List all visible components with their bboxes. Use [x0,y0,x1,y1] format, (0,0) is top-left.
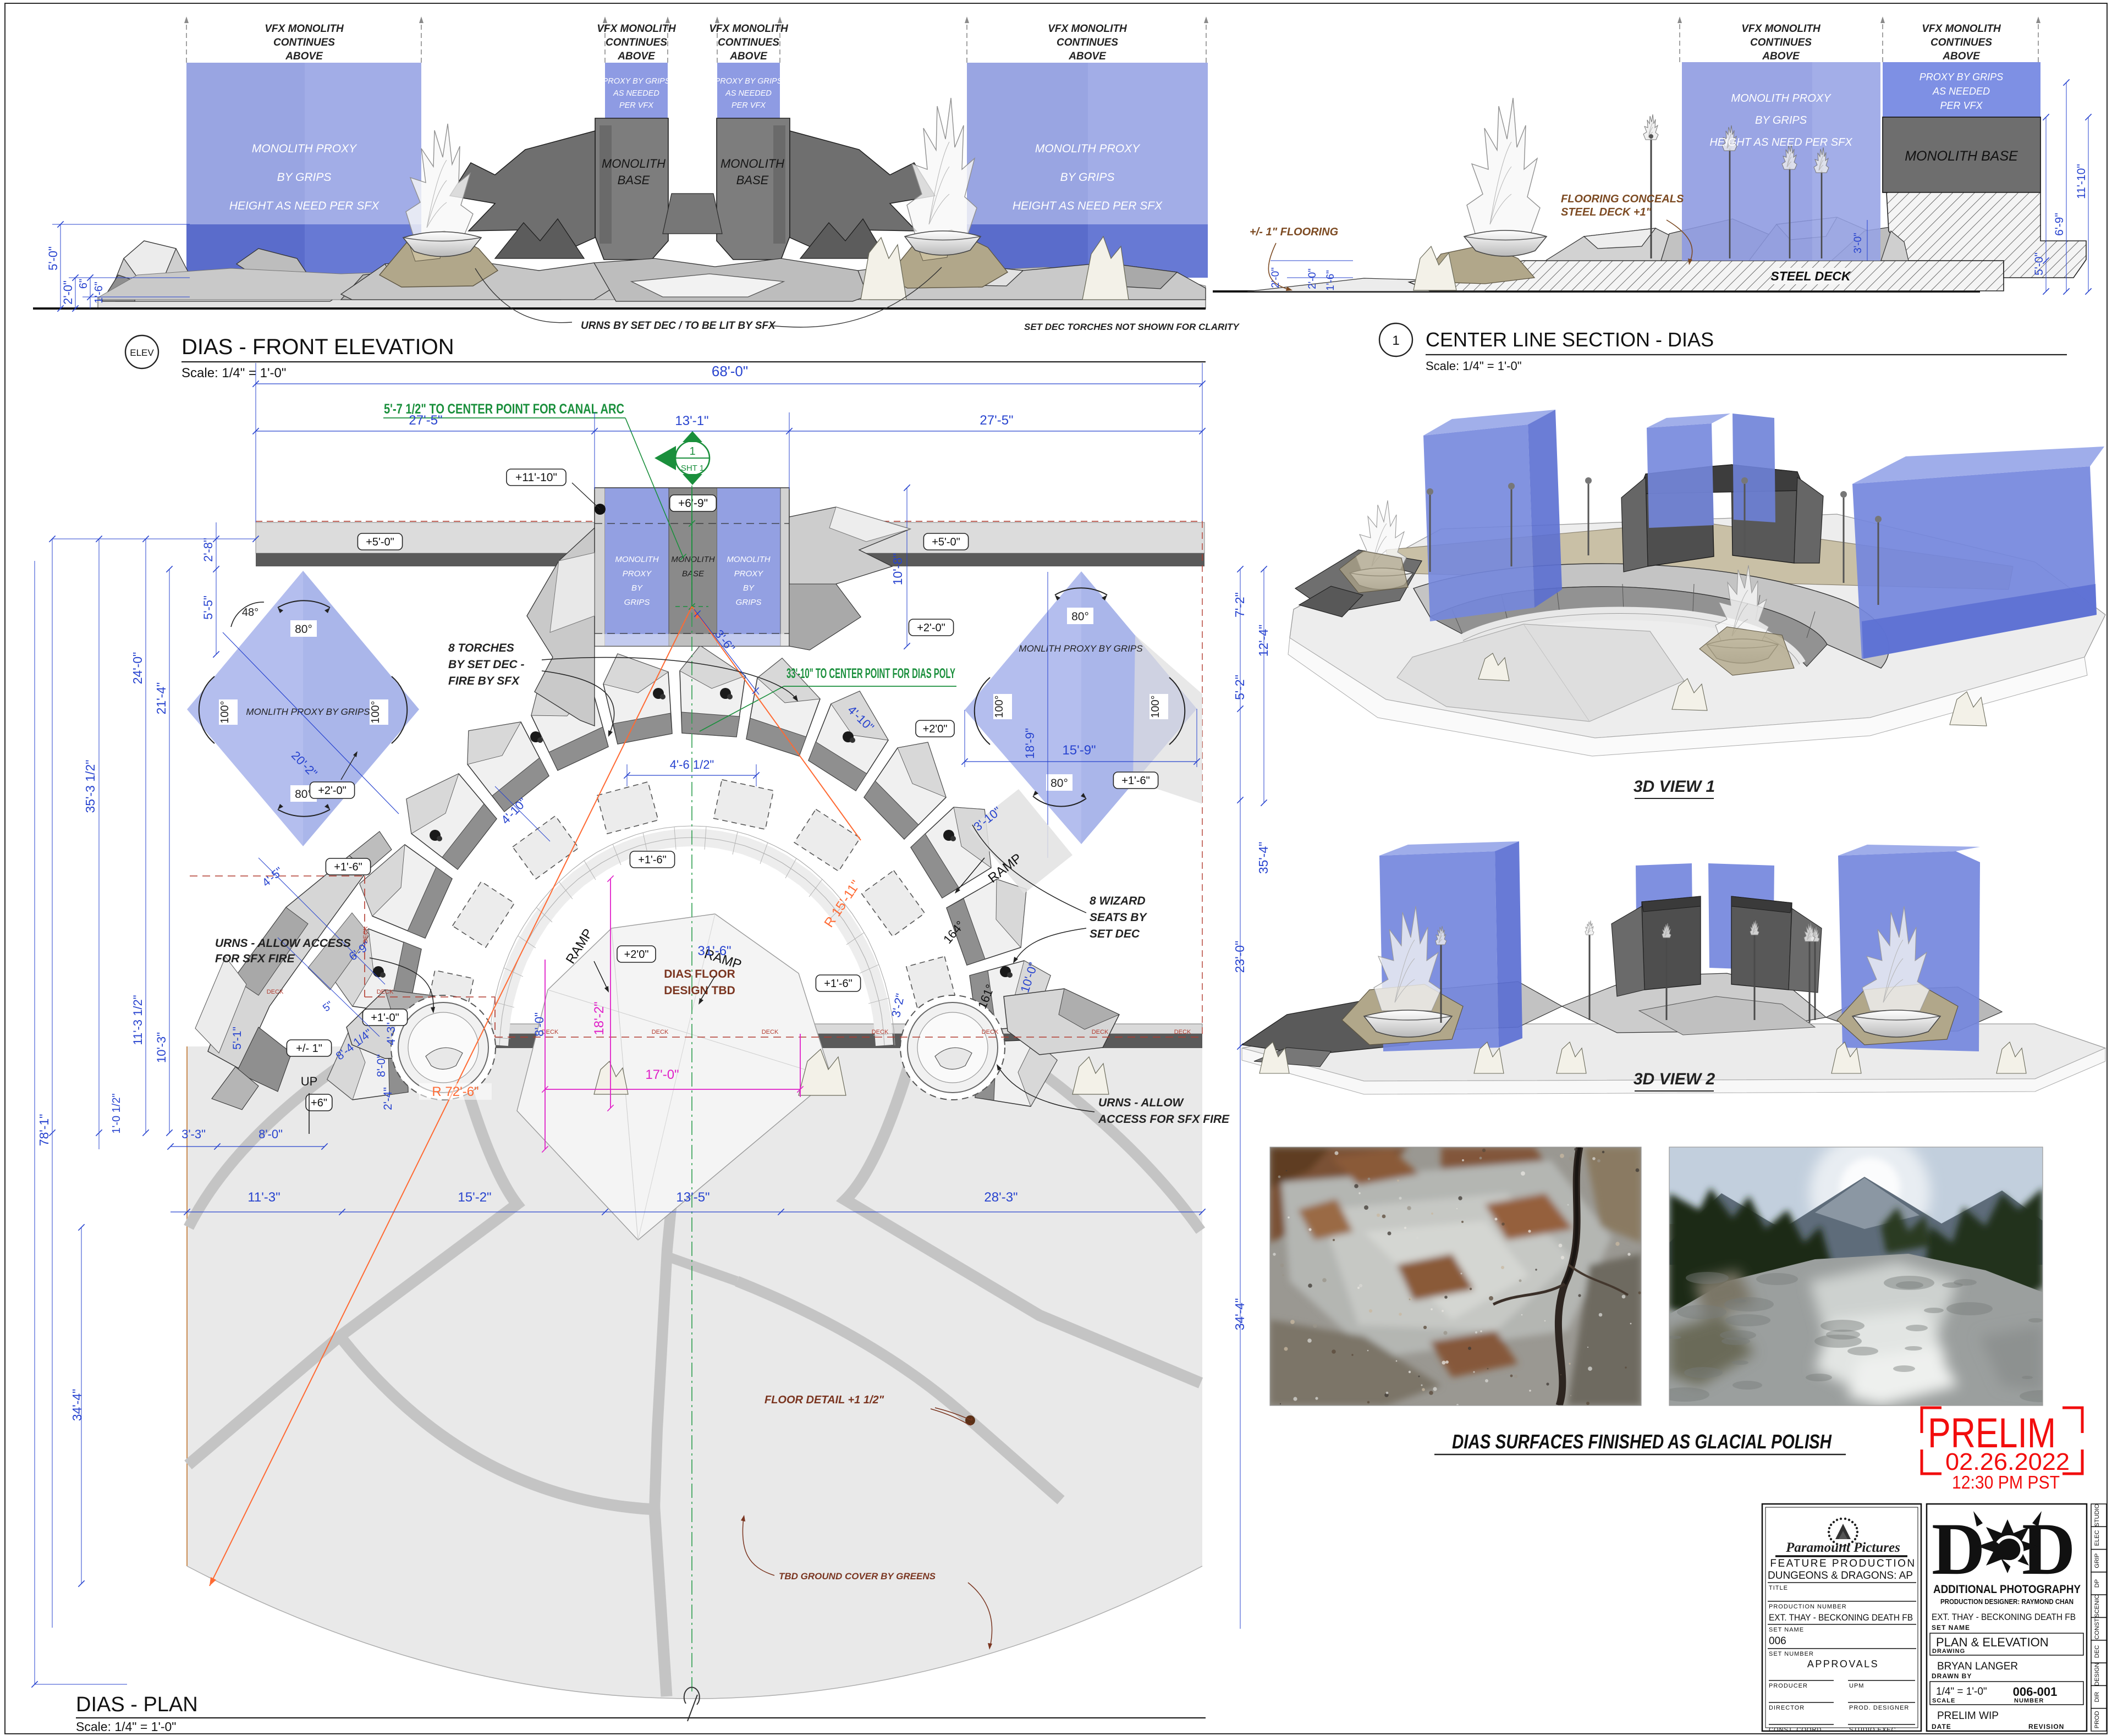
svg-text:DIAS SURFACES FINISHED AS GLAC: DIAS SURFACES FINISHED AS GLACIAL POLISH [1452,1430,1832,1453]
svg-text:EXT. THAY - BECKONING DEATH FB: EXT. THAY - BECKONING DEATH FB [1769,1612,1913,1623]
svg-text:SET DEC TORCHES NOT SHOWN FOR: SET DEC TORCHES NOT SHOWN FOR CLARITY [1024,322,1240,332]
svg-text:ABOVE: ABOVE [1762,51,1800,62]
svg-text:6": 6" [78,279,90,289]
svg-text:DESIGN TBD: DESIGN TBD [664,984,735,997]
svg-text:VFX MONOLITH: VFX MONOLITH [1048,23,1127,35]
svg-text:Scale: 1/4" = 1'-0": Scale: 1/4" = 1'-0" [1426,359,1522,373]
svg-text:FIRE BY SFX: FIRE BY SFX [448,675,520,687]
svg-text:6'-9": 6'-9" [2053,213,2066,236]
svg-text:31'-6": 31'-6" [697,944,731,958]
svg-text:R 72'-6": R 72'-6" [432,1084,479,1099]
svg-text:REVISION: REVISION [2028,1723,2064,1731]
svg-text:GRIP: GRIP [2094,1553,2100,1568]
svg-text:3'-3": 3'-3" [182,1127,206,1141]
svg-text:MONOLITH: MONOLITH [727,555,770,564]
svg-text:2'-0": 2'-0" [1307,268,1318,289]
svg-text:VFX MONOLITH: VFX MONOLITH [1741,23,1821,35]
svg-text:DIR: DIR [2094,1692,2100,1702]
svg-text:URNS BY SET DEC / TO BE LIT BY: URNS BY SET DEC / TO BE LIT BY SFX [581,320,776,332]
svg-text:FOR SFX FIRE: FOR SFX FIRE [215,952,295,965]
svg-text:+1'-0": +1'-0" [371,1012,399,1024]
svg-text:100°: 100° [219,701,231,723]
svg-text:APPROVALS: APPROVALS [1807,1658,1879,1669]
svg-text:3D VIEW 2: 3D VIEW 2 [1634,1070,1715,1088]
svg-text:1: 1 [689,445,695,458]
svg-text:4'-3": 4'-3" [385,1022,398,1045]
svg-text:GRIPS: GRIPS [736,598,762,607]
svg-text:100°: 100° [370,701,382,723]
svg-text:UPM: UPM [1849,1683,1864,1689]
svg-text:CONTINUES: CONTINUES [1750,37,1812,48]
svg-text:+1'-6": +1'-6" [334,861,362,873]
svg-text:21'-4": 21'-4" [154,682,168,715]
svg-text:PER VFX: PER VFX [732,101,766,110]
svg-text:AS NEEDED: AS NEEDED [725,89,772,98]
svg-text:DP: DP [2094,1579,2100,1588]
svg-text:DESIGN: DESIGN [2094,1663,2100,1686]
svg-text:MONOLITH: MONOLITH [671,555,714,564]
svg-text:34'-4": 34'-4" [70,1389,84,1421]
svg-text:PRODUCER: PRODUCER [1769,1683,1808,1689]
svg-text:28'-3": 28'-3" [984,1190,1018,1205]
svg-text:TBD GROUND COVER BY GREENS: TBD GROUND COVER BY GREENS [779,1571,936,1581]
svg-text:12'-4": 12'-4" [1256,625,1270,657]
svg-text:SCENIC: SCENIC [2094,1595,2100,1618]
svg-text:18'-9": 18'-9" [1023,728,1037,759]
svg-text:11'-3": 11'-3" [248,1190,280,1205]
svg-text:PROXY BY GRIPS: PROXY BY GRIPS [603,77,670,86]
svg-text:+2'0": +2'0" [624,949,649,961]
svg-text:BASE: BASE [736,173,769,187]
svg-text:2'-0": 2'-0" [1270,267,1281,288]
svg-text:8'-0": 8'-0" [375,1054,388,1077]
svg-text:10'-8": 10'-8" [890,553,905,586]
svg-text:48°: 48° [242,607,258,619]
svg-text:PROD: PROD [2094,1711,2100,1728]
svg-text:SET NAME: SET NAME [1769,1627,1804,1633]
svg-text:VFX MONOLITH: VFX MONOLITH [265,23,344,35]
svg-text:1/4" = 1'-0": 1/4" = 1'-0" [1936,1686,1987,1698]
svg-text:SHT 1: SHT 1 [681,464,704,473]
svg-text:8 TORCHES: 8 TORCHES [448,642,514,654]
svg-text:CONTINUES: CONTINUES [1057,37,1118,48]
svg-text:5'-2": 5'-2" [1233,675,1247,700]
svg-text:UP: UP [301,1074,318,1088]
svg-text:MONOLITH: MONOLITH [615,555,658,564]
svg-text:BY GRIPS: BY GRIPS [1755,114,1807,126]
svg-text:MONOLITH: MONOLITH [721,157,784,170]
svg-text:80°: 80° [1050,777,1068,790]
svg-text:MONOLITH: MONOLITH [602,157,665,170]
svg-text:2'-8": 2'-8" [201,538,215,562]
svg-text:MONLITH PROXY BY GRIPS: MONLITH PROXY BY GRIPS [1019,643,1143,654]
svg-text:TITLE: TITLE [1769,1585,1788,1591]
svg-text:11'-3 1/2": 11'-3 1/2" [131,995,145,1045]
svg-text:VFX MONOLITH: VFX MONOLITH [1922,23,2001,35]
svg-text:ACCESS FOR SFX FIRE: ACCESS FOR SFX FIRE [1098,1113,1230,1126]
svg-text:5'-5": 5'-5" [201,596,215,620]
svg-text:MONOLITH BASE: MONOLITH BASE [1905,148,2018,164]
svg-text:DIRECTOR: DIRECTOR [1769,1705,1805,1711]
svg-text:24'-0": 24'-0" [130,652,145,685]
svg-text:3D VIEW 1: 3D VIEW 1 [1634,778,1715,796]
svg-text:PROXY BY GRIPS: PROXY BY GRIPS [1920,71,2003,82]
svg-text:CENTER LINE SECTION - DIAS: CENTER LINE SECTION - DIAS [1426,328,1714,351]
svg-text:HEIGHT AS NEED PER SFX: HEIGHT AS NEED PER SFX [1709,136,1852,148]
svg-text:PRODUCTION DESIGNER: RAYMOND C: PRODUCTION DESIGNER: RAYMOND CHAN [1940,1597,2073,1606]
svg-text:D: D [2022,1508,2076,1590]
svg-text:MONOLITH PROXY: MONOLITH PROXY [1035,142,1141,155]
svg-text:BASE: BASE [682,569,705,578]
svg-text:SET DEC: SET DEC [1090,928,1140,940]
svg-text:VFX MONOLITH: VFX MONOLITH [709,23,789,35]
svg-text:DEC: DEC [2094,1645,2100,1658]
svg-text:+6'-9": +6'-9" [678,497,708,510]
svg-text:MONOLITH PROXY: MONOLITH PROXY [1731,92,1832,104]
svg-text:GRIPS: GRIPS [624,598,650,607]
svg-text:80°: 80° [1071,610,1089,623]
svg-text:12:30 PM PST: 12:30 PM PST [1952,1472,2060,1492]
svg-text:5'-0": 5'-0" [2033,252,2045,275]
svg-text:15'-2": 15'-2" [458,1190,491,1205]
svg-text:HEIGHT AS NEED PER SFX: HEIGHT AS NEED PER SFX [229,200,380,212]
svg-text:STEEL DECK: STEEL DECK [1770,269,1851,283]
svg-text:DECK: DECK [267,989,284,995]
svg-text:BRYAN LANGER: BRYAN LANGER [1937,1661,2018,1672]
svg-text:13'-1": 13'-1" [675,414,708,428]
svg-text:1'-6": 1'-6" [93,282,105,304]
svg-text:FEATURE PRODUCTION: FEATURE PRODUCTION [1770,1558,1916,1569]
svg-text:+/- 1" FLOORING: +/- 1" FLOORING [1250,226,1338,238]
svg-text:15'-9": 15'-9" [1062,743,1096,758]
svg-text:STUDIO: STUDIO [2094,1503,2100,1526]
svg-text:CONTINUES: CONTINUES [718,37,779,48]
svg-text:PRODUCTION NUMBER: PRODUCTION NUMBER [1769,1603,1847,1610]
svg-text:BY SET DEC -: BY SET DEC - [448,658,524,671]
svg-text:PER VFX: PER VFX [619,101,654,110]
svg-text:CONTINUES: CONTINUES [606,37,667,48]
svg-text:DRAWING: DRAWING [1932,1648,1965,1655]
svg-text:DECK: DECK [872,1029,889,1035]
svg-text:3'-0": 3'-0" [1852,233,1864,253]
svg-text:+5'-0": +5'-0" [932,536,960,548]
svg-text:URNS - ALLOW ACCESS: URNS - ALLOW ACCESS [215,937,351,950]
svg-text:8'-0": 8'-0" [532,1012,546,1037]
svg-text:PROD. DESIGNER: PROD. DESIGNER [1849,1705,1909,1711]
svg-text:PROXY: PROXY [623,569,652,578]
svg-text:+6": +6" [311,1097,327,1109]
svg-text:27'-5": 27'-5" [980,413,1013,428]
svg-text:AS NEEDED: AS NEEDED [613,89,659,98]
svg-text:SCALE: SCALE [1932,1698,1955,1704]
svg-text:MONLITH PROXY BY GRIPS: MONLITH PROXY BY GRIPS [246,707,370,717]
svg-text:CONST: CONST [2094,1618,2100,1640]
svg-text:HEIGHT AS NEED PER SFX: HEIGHT AS NEED PER SFX [1013,200,1163,212]
svg-text:BY: BY [743,583,755,593]
svg-text:+11'-10": +11'-10" [515,471,557,484]
svg-text:DECK: DECK [1092,1029,1109,1035]
svg-text:FLOORING CONCEALS: FLOORING CONCEALS [1561,193,1684,205]
svg-text:DIAS FLOOR: DIAS FLOOR [664,968,735,980]
svg-text:NUMBER: NUMBER [2014,1698,2044,1704]
svg-text:DATE: DATE [1932,1723,1951,1731]
svg-text:PER VFX: PER VFX [1940,100,1983,111]
svg-text:23'-0": 23'-0" [1233,941,1247,973]
svg-text:+1'-6": +1'-6" [638,854,667,866]
svg-text:DECK: DECK [377,989,394,995]
svg-text:78'-1": 78'-1" [37,1114,51,1147]
svg-text:PRELIM WIP: PRELIM WIP [1937,1710,1999,1722]
svg-text:11'-10": 11'-10" [2075,164,2088,199]
svg-text:PROXY BY GRIPS: PROXY BY GRIPS [715,77,783,86]
svg-text:Scale: 1/4" = 1'-0": Scale: 1/4" = 1'-0" [182,366,286,381]
svg-text:ABOVE: ABOVE [1942,51,1981,62]
svg-text:2'-0": 2'-0" [61,280,75,305]
svg-text:MONOLITH PROXY: MONOLITH PROXY [252,142,358,155]
svg-text:7'-2": 7'-2" [1233,592,1247,618]
svg-text:Scale: 1/4" = 1'-0": Scale: 1/4" = 1'-0" [76,1720,176,1734]
svg-text:URNS - ALLOW: URNS - ALLOW [1098,1096,1185,1109]
svg-text:Paramount Pictures: Paramount Pictures [1785,1540,1900,1555]
svg-text:ADDITIONAL PHOTOGRAPHY: ADDITIONAL PHOTOGRAPHY [1933,1583,2081,1596]
svg-text:ABOVE: ABOVE [729,51,768,62]
svg-text:BY GRIPS: BY GRIPS [277,171,332,184]
svg-text:PROXY: PROXY [734,569,764,578]
svg-text:AS NEEDED: AS NEEDED [1932,86,1990,97]
svg-text:33'-10" TO CENTER POINT FOR DI: 33'-10" TO CENTER POINT FOR DIAS POLY [787,666,955,681]
svg-text:ELEC: ELEC [2094,1530,2100,1546]
svg-text:DIAS - PLAN: DIAS - PLAN [76,1693,198,1716]
svg-text:68'-0": 68'-0" [712,363,748,379]
svg-text:+5'-0": +5'-0" [366,536,394,548]
svg-text:DECK: DECK [762,1029,779,1035]
svg-text:CONST. COORD.: CONST. COORD. [1769,1727,1824,1733]
svg-text:006-001: 006-001 [2013,1685,2058,1699]
svg-text:8 WIZARD: 8 WIZARD [1090,895,1146,907]
svg-text:SET NUMBER: SET NUMBER [1769,1651,1814,1657]
svg-text:BY: BY [631,583,643,593]
svg-text:1: 1 [1392,333,1399,348]
svg-text:8'-0": 8'-0" [258,1127,283,1141]
svg-text:5'-0": 5'-0" [46,246,60,271]
svg-text:BASE: BASE [618,173,650,187]
svg-text:DIAS - FRONT ELEVATION: DIAS - FRONT ELEVATION [182,335,454,359]
svg-text:FLOOR DETAIL +1 1/2": FLOOR DETAIL +1 1/2" [765,1394,884,1406]
svg-text:02.26.2022: 02.26.2022 [1945,1448,2070,1475]
svg-text:34'-4": 34'-4" [1233,1298,1247,1331]
svg-text:ABOVE: ABOVE [1068,51,1107,62]
svg-text:100°: 100° [993,695,1005,718]
svg-text:4'-6 1/2": 4'-6 1/2" [670,758,714,771]
svg-text:10'-3": 10'-3" [155,1032,168,1063]
svg-text:+1'-6": +1'-6" [1121,775,1150,787]
svg-text:STEEL DECK +1": STEEL DECK +1" [1561,206,1652,218]
svg-text:EXT. THAY - BECKONING DEATH FB: EXT. THAY - BECKONING DEATH FB [1932,1612,2076,1622]
svg-text:STUDIO EXEC.: STUDIO EXEC. [1849,1727,1899,1733]
svg-text:35'-4": 35'-4" [1256,842,1270,874]
svg-text:18'-2": 18'-2" [592,1001,607,1035]
svg-text:CONTINUES: CONTINUES [1931,37,1992,48]
svg-text:+1'-6": +1'-6" [824,978,853,990]
svg-text:13'-5": 13'-5" [676,1190,710,1205]
svg-text:+2'0": +2'0" [923,723,948,735]
svg-text:1'-0 1/2": 1'-0 1/2" [111,1093,123,1133]
svg-text:17'-0": 17'-0" [645,1067,679,1082]
svg-text:SEATS BY: SEATS BY [1090,911,1147,924]
svg-text:35'-3 1/2": 35'-3 1/2" [83,760,97,813]
svg-text:+/- 1": +/- 1" [296,1043,322,1055]
svg-text:VFX MONOLITH: VFX MONOLITH [597,23,676,35]
svg-text:80°: 80° [295,623,312,636]
svg-text:DRAWN BY: DRAWN BY [1932,1672,1972,1680]
svg-text:5'-1": 5'-1" [231,1027,244,1050]
svg-text:ABOVE: ABOVE [285,51,323,62]
svg-text:+2'-0": +2'-0" [917,622,945,634]
svg-text:DECK: DECK [982,1029,999,1035]
svg-text:ABOVE: ABOVE [617,51,656,62]
svg-text:27'-5": 27'-5" [409,413,442,428]
svg-text:SET NAME: SET NAME [1932,1624,1970,1632]
svg-text:2'-4": 2'-4" [382,1087,394,1110]
svg-text:+2'-0": +2'-0" [318,785,346,797]
svg-text:100°: 100° [1149,695,1162,718]
svg-text:006: 006 [1769,1635,1786,1647]
svg-text:1'-6": 1'-6" [1325,270,1336,291]
svg-text:ELEV: ELEV [130,348,154,358]
svg-text:BY GRIPS: BY GRIPS [1060,171,1115,184]
svg-text:CONTINUES: CONTINUES [273,37,335,48]
svg-text:DUNGEONS & DRAGONS: AP: DUNGEONS & DRAGONS: AP [1768,1570,1913,1581]
svg-text:DECK: DECK [1174,1029,1191,1035]
svg-text:PLAN & ELEVATION: PLAN & ELEVATION [1936,1635,2049,1649]
svg-text:DECK: DECK [652,1029,669,1035]
